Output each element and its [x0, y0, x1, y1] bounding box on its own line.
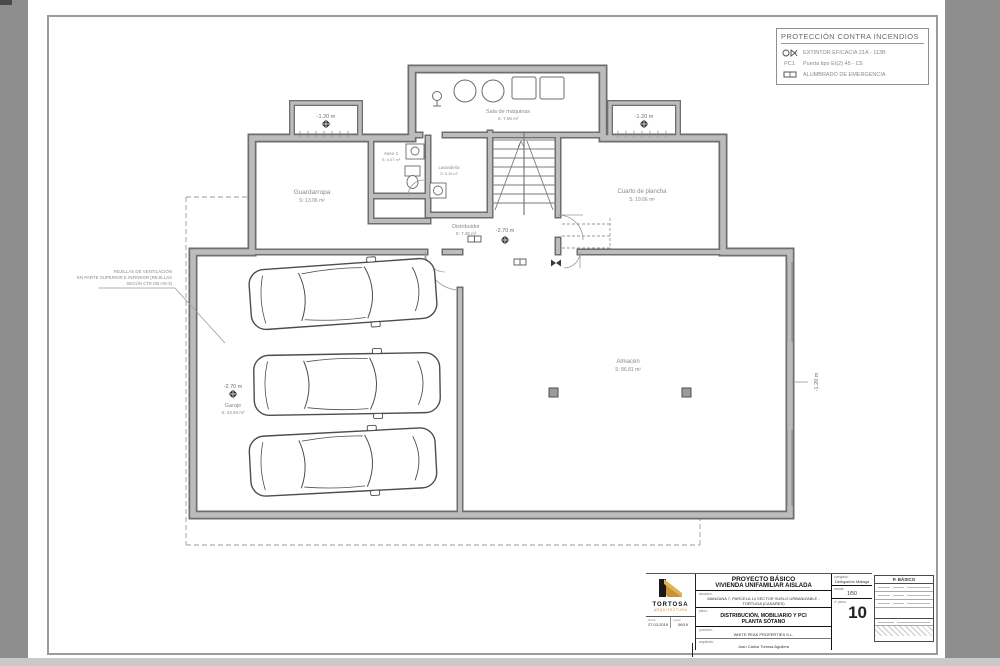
stamp-row — [875, 600, 933, 608]
room-area-plancha: S: 19.66 m² — [629, 197, 655, 203]
level-vent-right: -1.20 m — [635, 114, 654, 120]
room-label-maquinas: Sala de máquinas — [486, 109, 530, 115]
promotor-value: WHITE PEAK PROPERTIES S.L. — [699, 632, 828, 637]
extinguisher-icon — [781, 49, 798, 57]
expediente-field: expte: 06/19 — [670, 617, 695, 628]
title-block-rows: PROYECTO BÁSICO VIVIENDA UNIFAMILIAR AIS… — [696, 574, 831, 650]
sheet-number: 10 — [834, 604, 870, 623]
room-label-aseo: Aseo 1 — [384, 151, 399, 156]
stamp-title: P. BÁSICO — [875, 576, 933, 584]
situacion-value: MANZANA 7, PARCELA 14 SECTOR SUELO URBAN… — [699, 596, 828, 606]
colegiado-cell: colegiado: Delegación Málaga — [832, 574, 872, 586]
arquitecto-row: arquitecto: Juan Carlos Tortosa Aguilera — [696, 639, 831, 650]
machine-room-equipment — [433, 77, 565, 106]
room-area-aseo: S: 4.07 m² — [382, 157, 401, 162]
drawing-sheet-view: Guardarropa S: 13.06 m² Aseo 1 S: 4.07 m… — [0, 0, 1000, 666]
room-label-lavanderia: Lavandería — [439, 165, 461, 170]
tortosa-logo-icon — [656, 577, 686, 601]
room-label-almacen: Almacén — [616, 359, 639, 365]
light-label: ALUMBRADO DE EMERGENCIA — [803, 72, 886, 78]
legend-row-light: ALUMBRADO DE EMERGENCIA — [781, 69, 924, 80]
logo-subtitle: ARQUITECTURA — [654, 608, 688, 612]
room-label-garaje: Garaje — [225, 403, 242, 409]
room-area-maquinas: S: 7.06 m² — [498, 116, 519, 121]
extinguisher-label: EXTINTOR EFICACIA 21A - 113B — [803, 50, 886, 56]
staircase — [492, 133, 556, 215]
project-header: PROYECTO BÁSICO VIVIENDA UNIFAMILIAR AIS… — [696, 574, 831, 591]
door-label: Puerta tipo EI(2) 45 - C5 — [803, 61, 863, 67]
vent-note-line3: SEGÚN CTE DB HS-3) — [126, 281, 172, 286]
title-block-main: PROYECTO BÁSICO VIVIENDA UNIFAMILIAR AIS… — [696, 574, 872, 650]
colegiado-value: Delegación Málaga — [834, 579, 870, 584]
stamp-signature-area — [875, 608, 933, 619]
vent-note-leader — [98, 288, 225, 343]
room-area-garaje: S: 44.94 m² — [221, 410, 245, 415]
escala-value: 1/50 — [834, 591, 870, 597]
room-area-distribuidor: S: 7.36 m² — [456, 231, 477, 236]
title-block-logo-cell: TORTOSA ARQUITECTURA fecha: 27.03.2019 e… — [646, 574, 696, 650]
sheet-number-cell: nº plano: 10 — [832, 599, 872, 650]
room-label-guardarropa: Guardarropa — [294, 189, 331, 196]
plano-row: plano: DISTRIBUCIÓN, MOBILIARIO Y PCI PL… — [696, 608, 831, 627]
emergency-light-icon — [781, 71, 798, 78]
columns — [549, 388, 691, 397]
car-bottom — [248, 422, 437, 502]
title-block-right-column: colegiado: Delegación Málaga escala: 1/5… — [831, 574, 872, 650]
level-distribuidor: -2.70 m — [496, 228, 515, 234]
vent-note-line1: REJILLAS DE VENTILACIÓN — [114, 269, 172, 274]
pc1-code: PC1 — [781, 61, 798, 67]
stamp-row — [875, 584, 933, 592]
fire-legend: PROTECCIÓN CONTRA INCENDIOS EXTINTOR EFI… — [776, 28, 929, 85]
emergency-lights — [468, 236, 526, 265]
promotor-row: promotor: WHITE PEAK PROPERTIES S.L. — [696, 627, 831, 639]
level-garaje: -2.70 m — [224, 384, 243, 390]
stamp-hatch-strip — [875, 626, 933, 636]
room-area-almacen: S: 86.81 m² — [615, 367, 641, 373]
title-block: TORTOSA ARQUITECTURA fecha: 27.03.2019 e… — [646, 573, 872, 650]
room-label-plancha: Cuarto de plancha — [617, 189, 667, 195]
fecha-value: 27.03.2019 — [648, 622, 668, 627]
level-vent-left: -1.20 m — [317, 114, 336, 120]
room-area-lavanderia: S: 5.16 m² — [440, 172, 458, 176]
floor-plan-svg: Guardarropa S: 13.06 m² Aseo 1 S: 4.07 m… — [0, 0, 1000, 666]
situacion-row: situación: MANZANA 7, PARCELA 14 SECTOR … — [696, 591, 831, 608]
fecha-field: fecha: 27.03.2019 — [646, 617, 670, 628]
project-type: PROYECTO BÁSICO — [699, 576, 828, 583]
level-right-wall: -1.20 m — [814, 372, 820, 391]
stamp-row — [875, 619, 933, 626]
car-top — [248, 253, 438, 336]
legend-row-extinguisher: EXTINTOR EFICACIA 21A - 113B — [781, 47, 924, 58]
plano-line2: PLANTA SÓTANO — [699, 619, 828, 625]
legend-row-door: PC1 Puerta tipo EI(2) 45 - C5 — [781, 58, 924, 69]
approval-stamp-table: P. BÁSICO — [874, 575, 934, 642]
room-area-guardarropa: S: 13.06 m² — [299, 198, 325, 204]
expediente-value: 06/19 — [673, 622, 693, 627]
project-name: VIVIENDA UNIFAMILIAR AISLADA — [699, 583, 828, 589]
car-middle — [253, 347, 440, 420]
room-label-distribuidor: Distribuidor — [452, 224, 480, 230]
fire-legend-title: PROTECCIÓN CONTRA INCENDIOS — [781, 32, 924, 44]
arquitecto-value: Juan Carlos Tortosa Aguilera — [699, 644, 828, 649]
stamp-row — [875, 592, 933, 600]
escala-cell: escala: 1/50 — [832, 586, 872, 599]
date-fields: fecha: 27.03.2019 expte: 06/19 — [646, 616, 695, 628]
vent-note-line2: EN PARTE SUPERIOR E INFERIOR (REJILLAS — [77, 275, 172, 280]
